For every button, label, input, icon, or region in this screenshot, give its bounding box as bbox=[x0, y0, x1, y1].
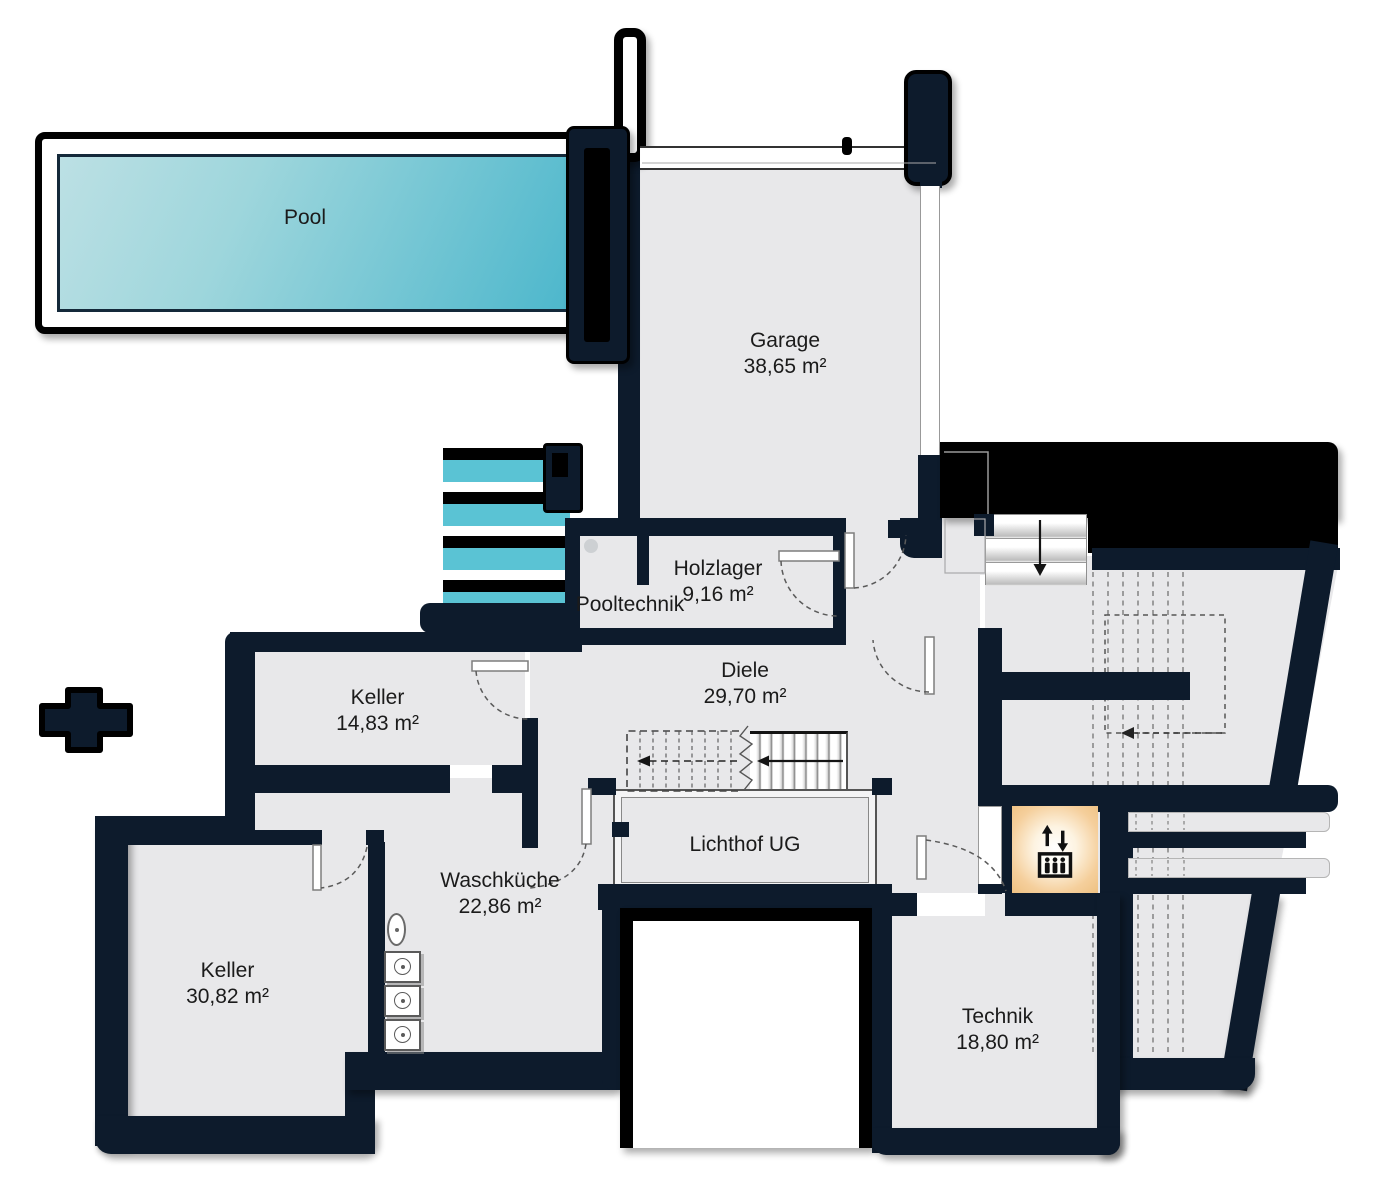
lichthof-cap-tl bbox=[588, 778, 616, 795]
side-step-riser bbox=[1128, 878, 1306, 894]
room-name: Garage bbox=[690, 328, 880, 354]
lightwell-void bbox=[620, 908, 872, 1148]
court-left-wall bbox=[978, 628, 1002, 808]
technik-bottom-wall bbox=[872, 1128, 1120, 1155]
corridor-top-wall bbox=[888, 520, 942, 538]
pool-right-structure bbox=[566, 126, 630, 364]
holzlager-right-wall bbox=[833, 518, 846, 645]
chimney-cross-icon bbox=[34, 682, 144, 762]
entry-wall-stub bbox=[974, 514, 994, 536]
room-area: 30,82 m² bbox=[130, 984, 325, 1010]
room-area: 29,70 m² bbox=[650, 684, 840, 710]
terrain-mass bbox=[940, 442, 1338, 518]
court-bottom-wall bbox=[1100, 1058, 1255, 1090]
garage-right-wall-bottom bbox=[918, 455, 942, 521]
lichthof-cap-left bbox=[612, 822, 629, 837]
room-name: Lichthof UG bbox=[650, 832, 840, 858]
washing-machine bbox=[384, 1019, 421, 1051]
room-label-lichthof: Lichthof UG bbox=[650, 832, 840, 858]
pool-step bbox=[443, 536, 570, 570]
technik-right-wall bbox=[1097, 893, 1120, 1155]
stairs-lower-flight bbox=[750, 731, 848, 792]
lichthof-cap-tr bbox=[872, 778, 892, 795]
elevator-icon bbox=[1026, 821, 1084, 879]
court-partition-wall bbox=[978, 672, 1190, 700]
pool-step-equipment bbox=[543, 443, 583, 513]
room-label-pool: Pool bbox=[210, 205, 400, 231]
lobby-wall-bit bbox=[978, 884, 1002, 894]
room-name: Diele bbox=[650, 658, 840, 684]
lichthof-bottom-wall bbox=[598, 884, 892, 910]
keller-gross-inner-wall bbox=[255, 830, 322, 845]
pool-water bbox=[57, 154, 571, 312]
room-name: Technik bbox=[900, 1004, 1095, 1030]
keller-gross-left-wall bbox=[95, 816, 128, 1146]
court-top-wall bbox=[1092, 548, 1340, 570]
keller-gross-top-wall bbox=[95, 816, 255, 845]
garage-right-window bbox=[920, 186, 940, 458]
room-name: Pool bbox=[210, 205, 400, 231]
technik-left-wall bbox=[872, 893, 892, 1153]
garage-door bbox=[640, 146, 940, 170]
room-area: 22,86 m² bbox=[395, 894, 605, 920]
room-label-keller-klein: Keller 14,83 m² bbox=[285, 685, 470, 737]
keller-gross-bottom-wall bbox=[95, 1116, 375, 1154]
room-label-garage: Garage 38,65 m² bbox=[690, 328, 880, 380]
room-name: Keller bbox=[285, 685, 470, 711]
elevator-lobby-door bbox=[978, 806, 1002, 886]
side-steps-top-wall bbox=[1098, 785, 1338, 812]
room-area: 18,80 m² bbox=[900, 1030, 1095, 1056]
garage-right-wall-top bbox=[920, 150, 942, 188]
room-label-technik: Technik 18,80 m² bbox=[900, 1004, 1095, 1056]
side-step-tread bbox=[1128, 858, 1330, 878]
waschkueche-bottom-wall bbox=[345, 1052, 622, 1090]
elevator-cell bbox=[1012, 806, 1098, 893]
room-name: Holzlager bbox=[642, 556, 794, 582]
keller-klein-top-wall bbox=[230, 632, 582, 652]
room-label-waschkueche: Waschküche 22,86 m² bbox=[395, 868, 605, 920]
pooltechnik-bottom-wall bbox=[565, 628, 845, 645]
room-area: 38,65 m² bbox=[690, 354, 880, 380]
side-step-riser bbox=[1128, 832, 1306, 848]
pooltechnik-left-wall bbox=[565, 518, 580, 645]
room-label-pooltechnik: Pooltechnik bbox=[569, 592, 691, 618]
room-name: Pooltechnik bbox=[569, 592, 691, 618]
keller-klein-bottom-wall-a bbox=[232, 765, 450, 793]
garage-door-marker bbox=[842, 137, 852, 155]
room-label-keller-gross: Keller 30,82 m² bbox=[130, 958, 325, 1010]
pool-step-base-wall bbox=[420, 603, 580, 633]
garage-bottom-wall bbox=[565, 518, 845, 536]
floorplan-basement: Pool Garage 38,65 m² Holzlager 9,16 m² P… bbox=[0, 0, 1378, 1200]
pooltechnik-knob bbox=[584, 539, 598, 553]
entrance-stairs bbox=[985, 514, 1087, 585]
room-label-diele: Diele 29,70 m² bbox=[650, 658, 840, 710]
room-name: Waschküche bbox=[395, 868, 605, 894]
room-area: 14,83 m² bbox=[285, 711, 470, 737]
washing-machine bbox=[384, 951, 421, 983]
room-name: Keller bbox=[130, 958, 325, 984]
waschkueche-left-wall bbox=[368, 842, 385, 1058]
elevator-left-wall bbox=[1002, 806, 1012, 893]
side-step-tread bbox=[1128, 812, 1330, 832]
keller-klein-right-stub bbox=[522, 718, 538, 848]
washing-machine bbox=[384, 985, 421, 1017]
